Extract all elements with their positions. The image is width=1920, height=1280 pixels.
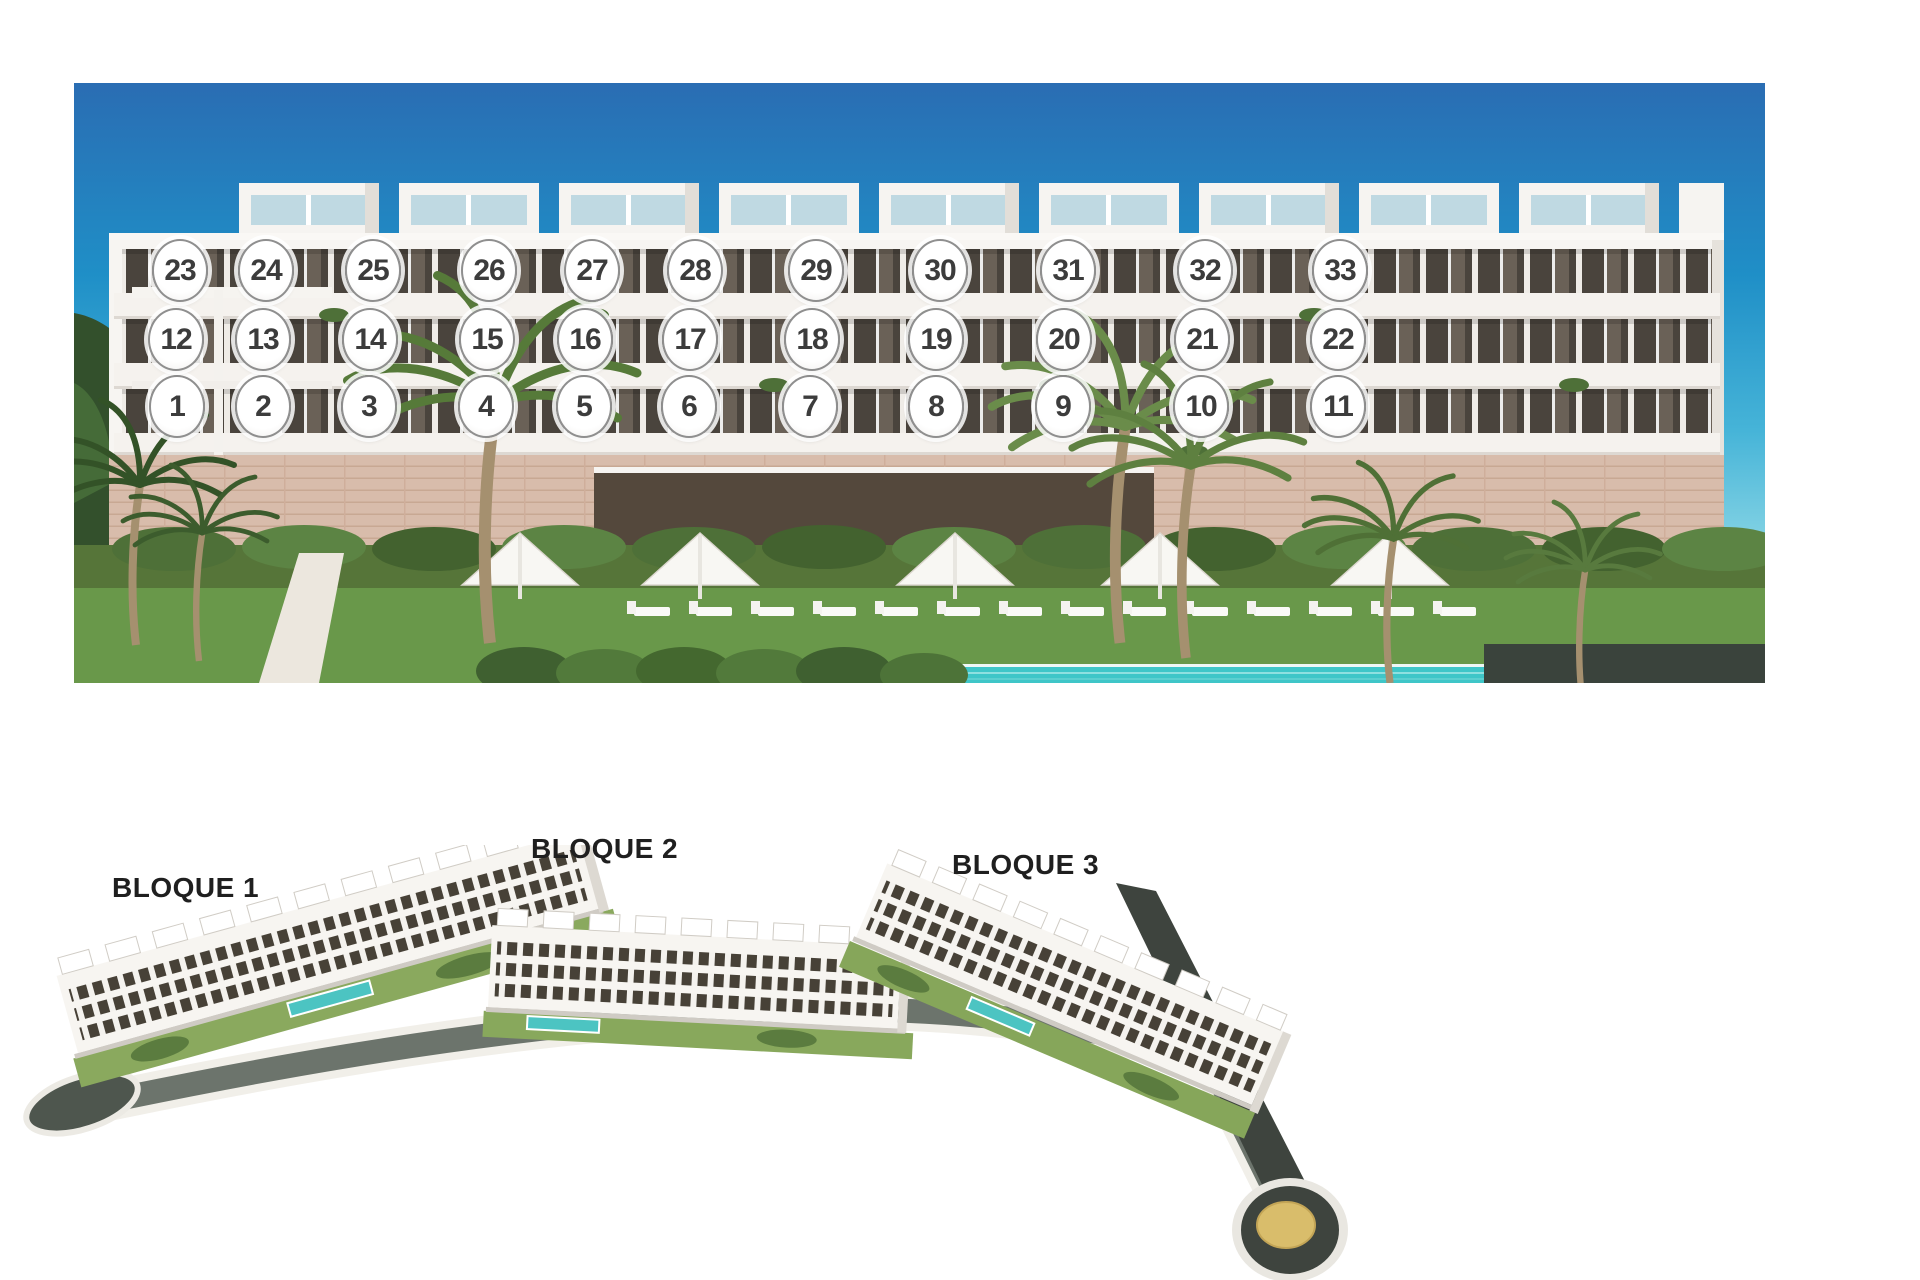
unit-circle-26: 26 <box>461 239 517 302</box>
unit-circle-3: 3 <box>341 375 397 438</box>
unit-circle-8: 8 <box>908 375 964 438</box>
unit-circle-1: 1 <box>149 375 205 438</box>
unit-circle-17: 17 <box>662 308 718 371</box>
site-plan-scene <box>20 845 1350 1280</box>
unit-circle-25: 25 <box>345 239 401 302</box>
unit-circle-10: 10 <box>1173 375 1229 438</box>
unit-circle-23: 23 <box>152 239 208 302</box>
page: 1234567891011121314151617181920212223242… <box>0 0 1920 1280</box>
unit-circle-5: 5 <box>556 375 612 438</box>
unit-circle-32: 32 <box>1177 239 1233 302</box>
unit-circle-19: 19 <box>908 308 964 371</box>
unit-circle-33: 33 <box>1312 239 1368 302</box>
unit-circle-16: 16 <box>557 308 613 371</box>
unit-circle-9: 9 <box>1035 375 1091 438</box>
unit-circle-20: 20 <box>1036 308 1092 371</box>
unit-circle-15: 15 <box>459 308 515 371</box>
block-label-bloque-2: BLOQUE 2 <box>531 833 678 865</box>
unit-circle-7: 7 <box>782 375 838 438</box>
dark-hedge <box>1484 644 1765 683</box>
bloque-3-building <box>839 846 1298 1140</box>
unit-circle-30: 30 <box>912 239 968 302</box>
unit-circle-11: 11 <box>1310 375 1366 438</box>
bloque-2-building <box>482 908 918 1059</box>
unit-circle-4: 4 <box>458 375 514 438</box>
block-label-bloque-3: BLOQUE 3 <box>952 849 1099 881</box>
unit-circle-29: 29 <box>788 239 844 302</box>
unit-circle-2: 2 <box>235 375 291 438</box>
unit-circle-28: 28 <box>667 239 723 302</box>
unit-circle-14: 14 <box>342 308 398 371</box>
unit-circle-13: 13 <box>235 308 291 371</box>
site-plan-render <box>20 845 1350 1280</box>
unit-circle-22: 22 <box>1310 308 1366 371</box>
block-label-bloque-1: BLOQUE 1 <box>112 872 259 904</box>
unit-circle-18: 18 <box>784 308 840 371</box>
pool <box>527 1016 600 1033</box>
unit-circle-24: 24 <box>238 239 294 302</box>
unit-circle-6: 6 <box>661 375 717 438</box>
unit-circle-12: 12 <box>148 308 204 371</box>
unit-circle-31: 31 <box>1040 239 1096 302</box>
garden <box>74 525 1765 683</box>
unit-circle-27: 27 <box>564 239 620 302</box>
unit-circle-21: 21 <box>1174 308 1230 371</box>
roundabout <box>1232 1178 1348 1280</box>
